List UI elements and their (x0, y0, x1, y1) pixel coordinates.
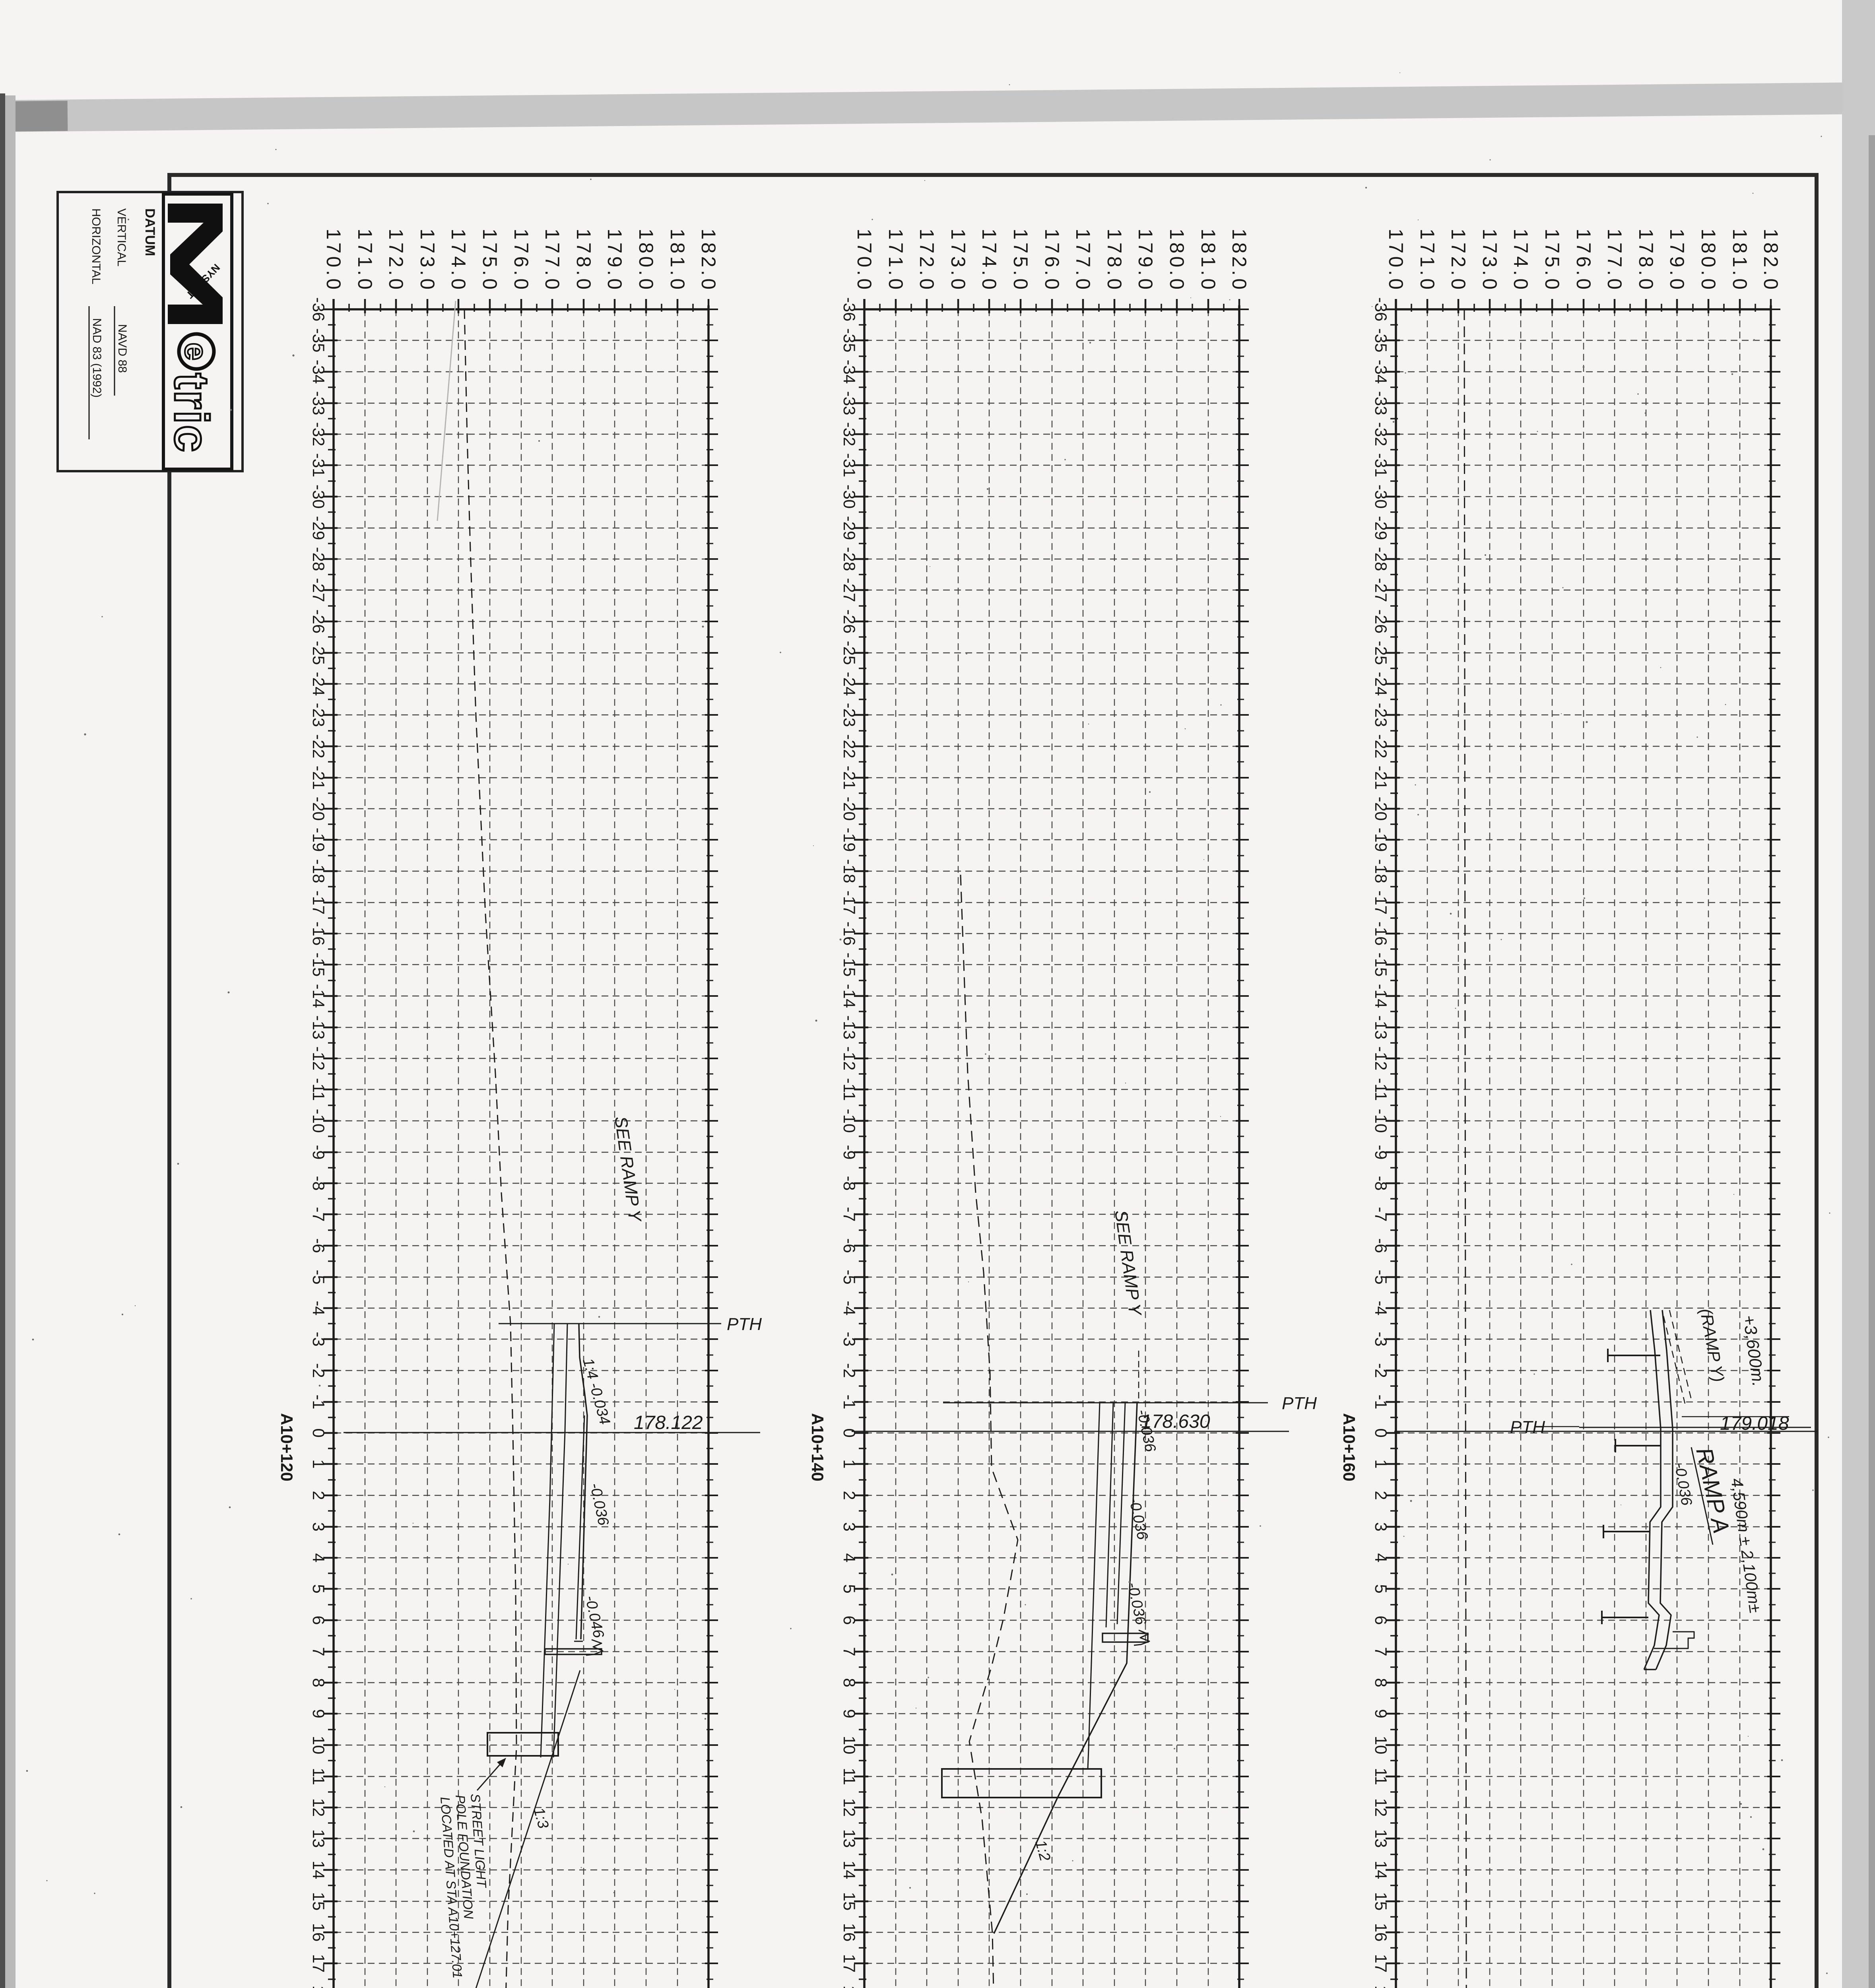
svg-text:3: 3 (840, 1522, 859, 1531)
svg-text:5: 5 (1372, 1584, 1390, 1593)
svg-text:-0.036: -0.036 (1126, 1496, 1151, 1541)
svg-text:-17: -17 (1372, 891, 1390, 915)
svg-text:-36: -36 (1372, 297, 1390, 322)
svg-text:-4: -4 (1372, 1301, 1390, 1315)
svg-text:12: 12 (309, 1798, 328, 1817)
svg-text:18: 18 (840, 1986, 859, 1988)
svg-text:2: 2 (309, 1491, 328, 1500)
svg-text:178.0: 178.0 (1635, 229, 1657, 292)
svg-text:-28: -28 (1372, 547, 1390, 571)
svg-text:-21: -21 (309, 766, 328, 790)
svg-text:-6: -6 (309, 1238, 328, 1253)
svg-text:-5: -5 (1372, 1270, 1390, 1284)
svg-text:9: 9 (309, 1709, 328, 1718)
svg-text:-18: -18 (840, 859, 859, 883)
svg-text:3: 3 (309, 1522, 328, 1531)
svg-text:-6: -6 (1372, 1238, 1390, 1253)
svg-text:175.0: 175.0 (1009, 229, 1032, 292)
svg-text:170.0: 170.0 (1385, 229, 1407, 292)
svg-text:1: 1 (840, 1459, 859, 1468)
svg-text:-12: -12 (309, 1046, 328, 1071)
svg-text:-23: -23 (1372, 703, 1390, 727)
svg-text:6: 6 (840, 1615, 859, 1625)
svg-text:-22: -22 (1372, 734, 1390, 759)
svg-text:6: 6 (1372, 1615, 1390, 1625)
svg-text:173.0: 173.0 (416, 229, 439, 292)
svg-text:-19: -19 (840, 828, 859, 852)
svg-text:11: 11 (1372, 1768, 1390, 1785)
svg-text:173.0: 173.0 (947, 229, 969, 292)
svg-text:179.0: 179.0 (604, 229, 626, 292)
svg-text:1:2: 1:2 (1032, 1838, 1053, 1863)
svg-text:17: 17 (840, 1954, 859, 1973)
svg-text:-31: -31 (309, 453, 328, 478)
svg-text:-18: -18 (309, 859, 328, 883)
svg-text:-35: -35 (1372, 328, 1390, 353)
svg-text:16: 16 (840, 1923, 859, 1942)
svg-text:174.0: 174.0 (978, 229, 1000, 292)
svg-text:0: 0 (840, 1428, 859, 1437)
svg-text:-30: -30 (1372, 485, 1390, 509)
svg-text:4,590m ± 2,100m±: 4,590m ± 2,100m± (1727, 1477, 1764, 1614)
svg-text:176.0: 176.0 (1041, 229, 1063, 292)
svg-text:174.0: 174.0 (1510, 229, 1532, 292)
svg-text:-27: -27 (309, 578, 328, 602)
svg-text:-26: -26 (309, 610, 328, 634)
svg-text:-12: -12 (840, 1046, 859, 1071)
svg-text:5: 5 (309, 1584, 328, 1593)
svg-text:-31: -31 (840, 453, 859, 478)
svg-text:8: 8 (1372, 1678, 1390, 1687)
svg-text:-14: -14 (309, 984, 328, 1008)
svg-text:-10: -10 (840, 1109, 859, 1133)
svg-text:-19: -19 (309, 828, 328, 852)
svg-text:179.0: 179.0 (1134, 229, 1157, 292)
svg-text:-10: -10 (1372, 1109, 1390, 1133)
svg-text:-9: -9 (1372, 1145, 1390, 1159)
svg-text:-1: -1 (840, 1394, 859, 1409)
svg-text:13: 13 (840, 1829, 859, 1848)
svg-text:13: 13 (309, 1829, 328, 1848)
svg-text:15: 15 (1372, 1892, 1390, 1911)
svg-text:-5: -5 (309, 1270, 328, 1284)
svg-text:4: 4 (840, 1553, 859, 1562)
svg-text:-35: -35 (309, 328, 328, 353)
svg-text:NAVD 88: NAVD 88 (116, 324, 129, 373)
svg-text:16: 16 (1372, 1923, 1390, 1942)
svg-text:-3: -3 (309, 1332, 328, 1346)
svg-text:-20: -20 (309, 797, 328, 821)
svg-text:12: 12 (840, 1798, 859, 1817)
svg-text:-25: -25 (309, 641, 328, 665)
svg-text:17: 17 (1372, 1954, 1390, 1973)
svg-text:PTH: PTH (727, 1314, 762, 1334)
svg-text:-33: -33 (840, 391, 859, 415)
svg-text:16: 16 (309, 1923, 328, 1942)
svg-text:-34: -34 (309, 360, 328, 384)
svg-text:-20: -20 (840, 797, 859, 821)
svg-text:175.0: 175.0 (1541, 229, 1563, 292)
svg-text:-6: -6 (840, 1238, 859, 1253)
svg-text:17: 17 (309, 1954, 328, 1973)
svg-text:-0.036: -0.036 (1671, 1462, 1695, 1507)
svg-text:10: 10 (1372, 1736, 1390, 1755)
svg-text:172.0: 172.0 (385, 229, 407, 292)
svg-text:18: 18 (309, 1986, 328, 1988)
svg-text:-24: -24 (1372, 672, 1390, 696)
svg-text:181.0: 181.0 (1197, 229, 1219, 292)
svg-text:-18: -18 (1372, 859, 1390, 883)
svg-text:-28: -28 (840, 547, 859, 571)
svg-text:-24: -24 (309, 672, 328, 696)
svg-text:4: 4 (1372, 1553, 1390, 1562)
svg-text:9: 9 (1372, 1709, 1390, 1718)
svg-text:-32: -32 (309, 422, 328, 447)
svg-text:10: 10 (840, 1736, 859, 1755)
svg-text:-8: -8 (1372, 1176, 1390, 1190)
svg-text:178.0: 178.0 (573, 229, 595, 292)
svg-text:180.0: 180.0 (1697, 229, 1720, 292)
svg-text:-24: -24 (840, 672, 859, 696)
svg-text:-8: -8 (840, 1176, 859, 1190)
svg-text:SEE RAMP Y: SEE RAMP Y (611, 1115, 645, 1224)
svg-text:182.0: 182.0 (1228, 229, 1250, 292)
svg-text:PTH: PTH (1510, 1417, 1545, 1437)
svg-text:-33: -33 (1372, 391, 1390, 415)
svg-text:176.0: 176.0 (510, 229, 532, 292)
svg-text:180.0: 180.0 (1166, 229, 1188, 292)
svg-text:179.0: 179.0 (1666, 229, 1688, 292)
svg-text:7: 7 (1372, 1647, 1390, 1656)
svg-text:-29: -29 (1372, 516, 1390, 540)
svg-text:177.0: 177.0 (1072, 229, 1094, 292)
svg-text:A10+140: A10+140 (808, 1413, 827, 1481)
svg-text:-34: -34 (1372, 360, 1390, 384)
svg-text:9: 9 (840, 1709, 859, 1718)
svg-text:-27: -27 (1372, 578, 1390, 602)
svg-text:2: 2 (1372, 1491, 1390, 1500)
svg-text:-4: -4 (309, 1301, 328, 1315)
svg-text:-25: -25 (840, 641, 859, 665)
svg-text:171.0: 171.0 (885, 229, 907, 292)
svg-text:-1: -1 (1372, 1394, 1390, 1409)
svg-text:-9: -9 (309, 1145, 328, 1159)
svg-text:11: 11 (840, 1768, 859, 1785)
svg-text:2: 2 (840, 1491, 859, 1500)
svg-text:7: 7 (840, 1647, 859, 1656)
svg-text:-2: -2 (840, 1363, 859, 1378)
svg-text:A10+160: A10+160 (1340, 1413, 1359, 1481)
svg-text:-8: -8 (309, 1176, 328, 1190)
svg-text:VERTICAL: VERTICAL (115, 208, 128, 266)
svg-text:-2: -2 (309, 1363, 328, 1378)
svg-text:-36: -36 (840, 297, 859, 322)
svg-text:0: 0 (309, 1428, 328, 1437)
svg-text:13: 13 (1372, 1829, 1390, 1848)
svg-text:181.0: 181.0 (1729, 229, 1751, 292)
svg-text:10: 10 (309, 1736, 328, 1755)
svg-text:-3: -3 (840, 1332, 859, 1346)
svg-text:-13: -13 (840, 1015, 859, 1040)
svg-text:A10+120: A10+120 (278, 1413, 296, 1481)
svg-text:3: 3 (1372, 1522, 1390, 1531)
svg-text:-22: -22 (840, 734, 859, 759)
svg-text:1:3: 1:3 (530, 1806, 551, 1830)
svg-text:-15: -15 (309, 953, 328, 977)
svg-text:8: 8 (840, 1678, 859, 1687)
svg-text:-14: -14 (840, 984, 859, 1008)
svg-text:-10: -10 (309, 1109, 328, 1133)
svg-text:RAMP A: RAMP A (1691, 1445, 1734, 1536)
svg-text:180.0: 180.0 (635, 229, 657, 292)
svg-text:-21: -21 (1372, 766, 1390, 790)
svg-text:-17: -17 (840, 891, 859, 915)
svg-text:-17: -17 (309, 891, 328, 915)
svg-text:-33: -33 (309, 391, 328, 415)
svg-text:-34: -34 (840, 360, 859, 384)
svg-text:-2: -2 (1372, 1363, 1390, 1378)
svg-text:-7: -7 (1372, 1207, 1390, 1221)
svg-text:DATUM: DATUM (142, 208, 157, 256)
svg-text:4: 4 (309, 1553, 328, 1562)
svg-text:177.0: 177.0 (1603, 229, 1626, 292)
svg-text:181.0: 181.0 (666, 229, 689, 292)
svg-text:(RAMP Y): (RAMP Y) (1696, 1307, 1728, 1383)
svg-text:-25: -25 (1372, 641, 1390, 665)
svg-text:15: 15 (840, 1892, 859, 1911)
svg-text:-11: -11 (309, 1078, 328, 1101)
svg-text:-21: -21 (840, 766, 859, 790)
svg-text:8: 8 (309, 1678, 328, 1687)
svg-text:-11: -11 (840, 1078, 859, 1101)
svg-text:-11: -11 (1372, 1078, 1390, 1101)
svg-text:-31: -31 (1372, 453, 1390, 478)
svg-text:SEE RAMP Y: SEE RAMP Y (1111, 1209, 1145, 1318)
svg-text:-35: -35 (840, 328, 859, 353)
svg-text:-36: -36 (309, 297, 328, 322)
svg-text:-19: -19 (1372, 828, 1390, 852)
svg-text:-15: -15 (840, 953, 859, 977)
svg-text:-3: -3 (1372, 1332, 1390, 1346)
svg-text:7: 7 (309, 1647, 328, 1656)
svg-text:1: 1 (1372, 1459, 1390, 1468)
svg-text:15: 15 (309, 1892, 328, 1911)
svg-text:-7: -7 (840, 1207, 859, 1221)
svg-text:178.122: 178.122 (634, 1412, 703, 1433)
svg-text:175.0: 175.0 (479, 229, 501, 292)
svg-text:HORIZONTAL: HORIZONTAL (89, 208, 103, 284)
svg-text:-1: -1 (309, 1394, 328, 1409)
svg-text:-4: -4 (840, 1301, 859, 1315)
svg-text:-0.046: -0.046 (582, 1594, 607, 1640)
svg-text:174.0: 174.0 (447, 229, 470, 292)
svg-text:177.0: 177.0 (541, 229, 563, 292)
svg-text:176.0: 176.0 (1572, 229, 1595, 292)
svg-text:-14: -14 (1372, 984, 1390, 1008)
svg-text:170.0: 170.0 (853, 229, 875, 292)
svg-text:-29: -29 (309, 516, 328, 540)
svg-text:14: 14 (309, 1861, 328, 1879)
svg-text:14: 14 (840, 1861, 859, 1879)
svg-text:-30: -30 (309, 485, 328, 509)
svg-text:11: 11 (309, 1768, 328, 1785)
svg-text:+3,600m.: +3,600m. (1739, 1314, 1768, 1388)
svg-text:-26: -26 (840, 610, 859, 634)
svg-text:-26: -26 (1372, 610, 1390, 634)
svg-text:-29: -29 (840, 516, 859, 540)
svg-text:-13: -13 (309, 1015, 328, 1040)
svg-text:18: 18 (1372, 1986, 1390, 1988)
svg-text:-27: -27 (840, 578, 859, 602)
svg-text:-13: -13 (1372, 1015, 1390, 1040)
svg-text:-23: -23 (309, 703, 328, 727)
svg-text:179.018: 179.018 (1720, 1413, 1789, 1434)
svg-text:tric: tric (165, 373, 219, 453)
svg-text:-5: -5 (840, 1270, 859, 1284)
svg-text:-16: -16 (1372, 922, 1390, 946)
svg-text:-16: -16 (840, 922, 859, 946)
svg-text:-30: -30 (840, 485, 859, 509)
svg-text:-0.036: -0.036 (586, 1481, 612, 1527)
svg-text:178.0: 178.0 (1103, 229, 1126, 292)
svg-text:6: 6 (309, 1615, 328, 1625)
svg-text:170.0: 170.0 (322, 229, 345, 292)
svg-text:172.0: 172.0 (916, 229, 938, 292)
svg-text:182.0: 182.0 (1760, 229, 1782, 292)
svg-text:-7: -7 (309, 1207, 328, 1221)
svg-text:14: 14 (1372, 1861, 1390, 1879)
svg-text:172.0: 172.0 (1447, 229, 1469, 292)
svg-text:NAD 83 (1992): NAD 83 (1992) (90, 318, 103, 398)
svg-text:171.0: 171.0 (1416, 229, 1438, 292)
svg-text:-16: -16 (309, 922, 328, 946)
svg-text:-32: -32 (840, 422, 859, 447)
svg-text:171.0: 171.0 (354, 229, 376, 292)
svg-text:-20: -20 (1372, 797, 1390, 821)
svg-text:-22: -22 (309, 734, 328, 759)
svg-text:e: e (179, 343, 214, 361)
svg-text:182.0: 182.0 (697, 229, 720, 292)
svg-text:-9: -9 (840, 1145, 859, 1159)
svg-text:-12: -12 (1372, 1046, 1390, 1071)
svg-text:173.0: 173.0 (1479, 229, 1501, 292)
svg-text:-23: -23 (840, 703, 859, 727)
svg-text:-28: -28 (309, 547, 328, 571)
svg-text:5: 5 (840, 1584, 859, 1593)
svg-text:12: 12 (1372, 1798, 1390, 1817)
svg-text:PTH: PTH (1282, 1394, 1317, 1413)
svg-text:-32: -32 (1372, 422, 1390, 447)
svg-text:0: 0 (1372, 1428, 1390, 1437)
svg-text:1: 1 (309, 1459, 328, 1468)
svg-text:-15: -15 (1372, 953, 1390, 977)
